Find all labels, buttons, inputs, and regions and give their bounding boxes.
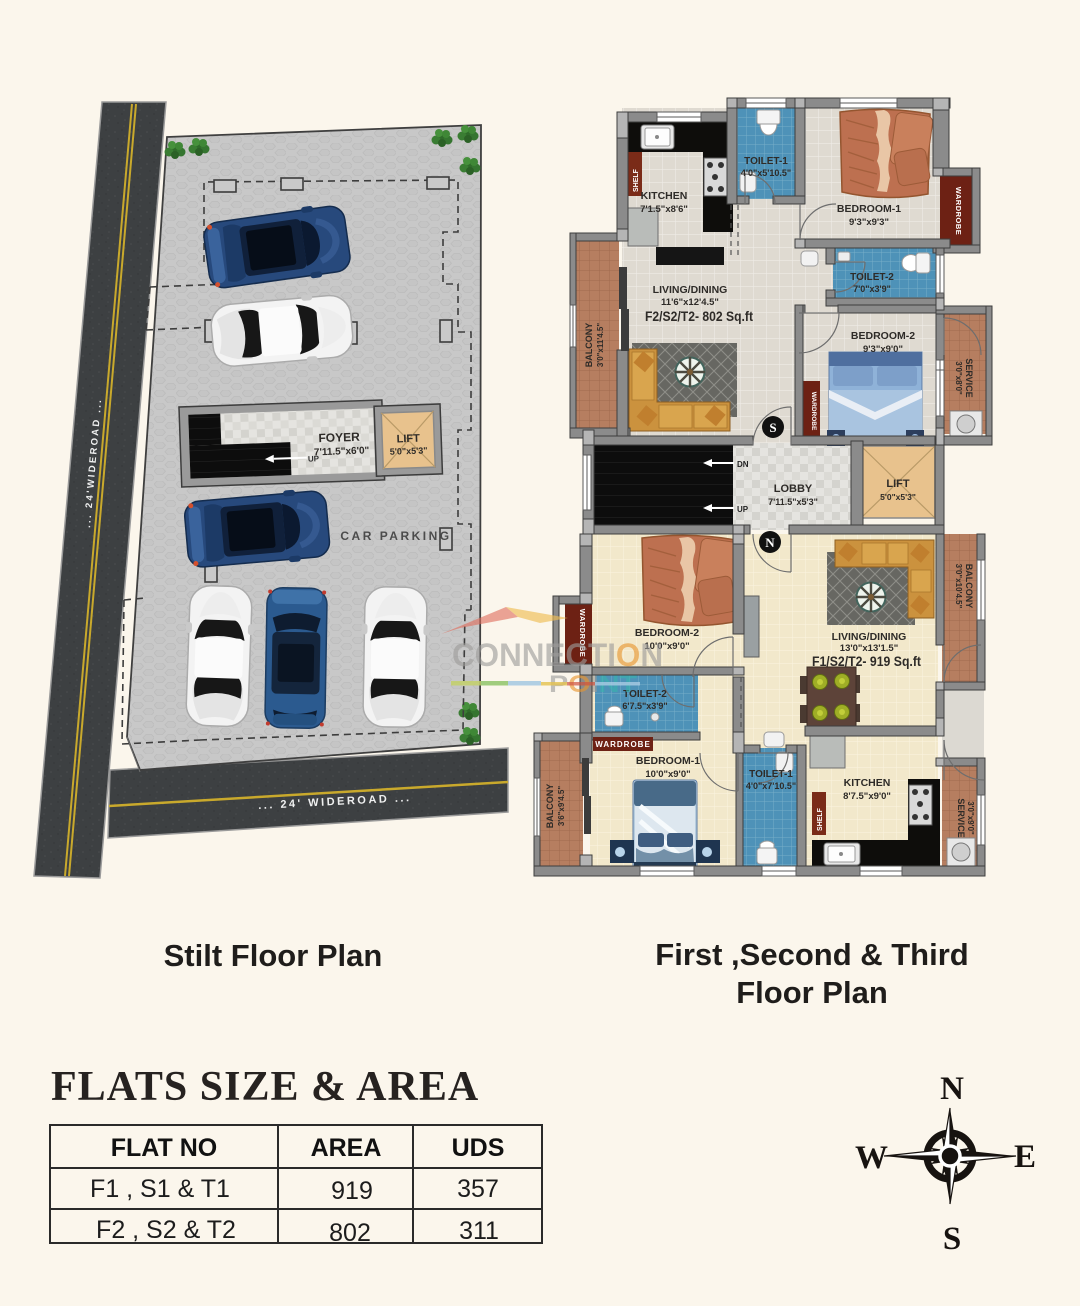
- svg-text:W: W: [855, 1140, 888, 1176]
- svg-text:N: N: [765, 535, 775, 550]
- svg-text:3'6"x9'4.5": 3'6"x9'4.5": [557, 786, 566, 827]
- svg-text:DN: DN: [737, 460, 749, 469]
- svg-text:3'0"x8'0": 3'0"x8'0": [954, 361, 963, 395]
- svg-text:WARDROBE: WARDROBE: [810, 392, 817, 431]
- svg-text:F2/S2/T2- 802 Sq.ft: F2/S2/T2- 802 Sq.ft: [645, 308, 753, 324]
- svg-text:919: 919: [331, 1177, 373, 1205]
- svg-text:F1/S2/T2- 919 Sq.ft: F1/S2/T2- 919 Sq.ft: [812, 653, 921, 669]
- svg-text:S: S: [769, 420, 776, 435]
- svg-text:UP: UP: [737, 505, 749, 514]
- svg-text:AREA: AREA: [311, 1134, 382, 1162]
- svg-text:BEDROOM-2: BEDROOM-2: [851, 330, 915, 342]
- svg-text:E: E: [1014, 1139, 1036, 1175]
- svg-text:TOILET-2: TOILET-2: [850, 272, 894, 283]
- svg-text:S: S: [943, 1221, 961, 1257]
- svg-text:WARDROBE: WARDROBE: [954, 187, 963, 236]
- svg-text:Floor Plan: Floor Plan: [736, 975, 888, 1010]
- svg-text:WARDROBE: WARDROBE: [595, 740, 651, 749]
- svg-text:Stilt Floor Plan: Stilt Floor Plan: [164, 938, 383, 973]
- svg-text:CONNECTION: CONNECTION: [452, 637, 663, 673]
- svg-text:TOILET-1: TOILET-1: [749, 769, 793, 780]
- svg-text:FLAT NO: FLAT NO: [111, 1134, 217, 1162]
- svg-text:9'3"x9'3": 9'3"x9'3": [849, 217, 889, 228]
- svg-text:BALCONY: BALCONY: [584, 323, 594, 368]
- svg-text:KITCHEN: KITCHEN: [844, 777, 891, 789]
- svg-text:3'0"x9'0": 3'0"x9'0": [966, 801, 975, 835]
- svg-text:7'0"x3'9": 7'0"x3'9": [853, 284, 891, 294]
- svg-text:357: 357: [457, 1175, 499, 1203]
- svg-text:7'1.5"x8'6": 7'1.5"x8'6": [640, 204, 688, 215]
- svg-text:BEDROOM-1: BEDROOM-1: [636, 755, 700, 767]
- svg-text:LIFT: LIFT: [886, 478, 909, 490]
- svg-text:LIVING/DINING: LIVING/DINING: [653, 284, 728, 296]
- svg-text:7'11.5"x5'3": 7'11.5"x5'3": [768, 497, 818, 507]
- svg-text:SERVICE: SERVICE: [956, 798, 966, 837]
- svg-text:F1 , S1 & T1: F1 , S1 & T1: [90, 1175, 230, 1203]
- svg-text:UDS: UDS: [452, 1134, 505, 1162]
- svg-text:10'0"x9'0": 10'0"x9'0": [645, 769, 690, 780]
- svg-text:SHELF: SHELF: [633, 168, 640, 192]
- svg-text:BEDROOM-1: BEDROOM-1: [837, 203, 901, 215]
- svg-text:802: 802: [329, 1219, 371, 1247]
- svg-text:3'0"x11'4.5": 3'0"x11'4.5": [596, 323, 605, 368]
- svg-text:SERVICE: SERVICE: [964, 358, 974, 397]
- svg-text:6'7.5"x3'9": 6'7.5"x3'9": [622, 701, 667, 711]
- svg-text:8'7.5"x9'0": 8'7.5"x9'0": [843, 791, 891, 802]
- svg-text:KITCHEN: KITCHEN: [641, 190, 688, 202]
- svg-text:9'3"x9'0": 9'3"x9'0": [863, 344, 903, 355]
- svg-text:11'6"x12'4.5": 11'6"x12'4.5": [661, 297, 719, 308]
- svg-text:5'0"x5'3": 5'0"x5'3": [390, 445, 428, 456]
- svg-text:LOBBY: LOBBY: [774, 483, 813, 495]
- svg-text:FLATS SIZE & AREA: FLATS SIZE & AREA: [51, 1064, 479, 1110]
- svg-text:BALCONY: BALCONY: [545, 784, 555, 829]
- svg-text:LIFT: LIFT: [396, 433, 420, 446]
- svg-text:4'0"x5'10.5": 4'0"x5'10.5": [741, 168, 791, 178]
- svg-text:First ,Second & Third: First ,Second & Third: [655, 937, 968, 972]
- svg-text:311: 311: [459, 1217, 499, 1245]
- svg-text:TOILET-1: TOILET-1: [744, 156, 788, 167]
- svg-text:BALCONY: BALCONY: [964, 564, 974, 609]
- svg-text:F2 , S2 & T2: F2 , S2 & T2: [96, 1216, 236, 1244]
- svg-text:N: N: [940, 1071, 964, 1107]
- svg-text:SHELF: SHELF: [817, 807, 824, 831]
- svg-text:5'0"x5'3": 5'0"x5'3": [880, 492, 916, 502]
- svg-text:3'0"x10'4.5": 3'0"x10'4.5": [954, 564, 963, 609]
- svg-text:LIVING/DINING: LIVING/DINING: [832, 631, 907, 643]
- svg-text:CAR PARKING: CAR PARKING: [340, 529, 451, 543]
- svg-text:7'11.5"x6'0": 7'11.5"x6'0": [314, 445, 370, 458]
- svg-text:4'0"x7'10.5": 4'0"x7'10.5": [746, 781, 796, 791]
- svg-text:FOYER: FOYER: [318, 430, 360, 445]
